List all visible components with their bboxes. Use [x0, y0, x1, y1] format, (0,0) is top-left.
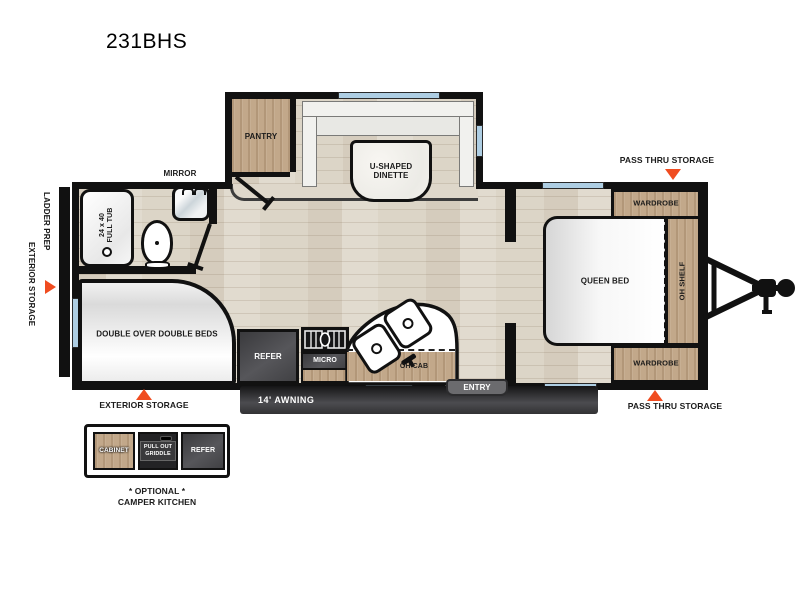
- camper-refer-label: REFER: [191, 447, 215, 455]
- camper-griddle: PULL OUT GRIDDLE: [138, 432, 178, 470]
- bathtub-label: 24 x 40 FULL TUB: [99, 208, 115, 243]
- dinette-bench-back: [302, 101, 474, 117]
- refer-label: REFER: [254, 352, 282, 361]
- bedroom-wall-top: [505, 182, 516, 242]
- pass-thru-bottom-label: PASS THRU STORAGE: [625, 402, 725, 412]
- toilet-base: [145, 261, 170, 269]
- dinette-bench-seat: [316, 116, 460, 136]
- bedroom-top-window: [542, 182, 604, 189]
- griddle-handle-icon: [160, 436, 172, 441]
- wardrobe-top-label: WARDROBE: [633, 200, 678, 209]
- camper-cabinet: CABINET: [93, 432, 135, 470]
- pantry-label: PANTRY: [234, 132, 288, 141]
- exterior-storage-bottom-label: EXTERIOR STORAGE: [98, 401, 190, 411]
- queen-bed-label: QUEEN BED: [581, 276, 629, 285]
- tub-drain: [102, 247, 112, 257]
- entry-badge: ENTRY: [446, 379, 508, 396]
- oh-shelf: OH SHELF: [665, 216, 701, 346]
- micro-label: MICRO: [313, 357, 337, 365]
- queen-bed: QUEEN BED: [543, 216, 667, 346]
- slideout-right-window: [476, 125, 483, 157]
- camper-griddle-label: PULL OUT GRIDDLE: [140, 441, 176, 461]
- awning-bar: 14' AWNING: [240, 386, 598, 414]
- pass-thru-top-arrow: [665, 169, 681, 180]
- wardrobe-bottom-label: WARDROBE: [633, 360, 678, 369]
- bathtub: 24 x 40 FULL TUB: [80, 189, 134, 267]
- ladder-prep-label: LADDER PREP: [42, 186, 51, 256]
- exterior-storage-bottom-arrow: [136, 389, 152, 400]
- pass-thru-top-label: PASS THRU STORAGE: [608, 156, 726, 166]
- slideout-wall-left: [225, 92, 232, 189]
- bath-sink: [172, 186, 210, 221]
- pantry-wall-bottom: [232, 172, 290, 177]
- wall-top-front: [604, 182, 708, 189]
- mirror-label: MIRROR: [150, 169, 210, 178]
- page-title: 231BHS: [106, 30, 187, 54]
- hitch-icon: [702, 238, 798, 338]
- faucet-icon: [194, 188, 206, 195]
- camper-cabinet-label: CABINET: [99, 447, 129, 454]
- awning-label: 14' AWNING: [258, 395, 314, 405]
- wall-bottom-front: [597, 383, 708, 390]
- camper-kitchen-box: CABINET PULL OUT GRIDDLE REFER: [84, 424, 230, 478]
- refrigerator: REFER: [237, 329, 299, 384]
- floorplan-canvas: 231BHS PANTRY U-SHA: [0, 0, 800, 600]
- camper-refer: REFER: [181, 432, 225, 470]
- bathroom-wall-stub: [209, 182, 217, 224]
- double-beds: DOUBLE OVER DOUBLE BEDS: [78, 279, 236, 385]
- wardrobe-top: WARDROBE: [611, 189, 701, 219]
- faucet-icon: [182, 188, 194, 195]
- pantry-wall-right: [290, 99, 296, 172]
- toilet: [141, 220, 173, 265]
- pass-thru-bottom-arrow: [647, 390, 663, 401]
- exterior-storage-left-label: EXTERIOR STORAGE: [27, 234, 36, 334]
- dinette-label: U-SHAPED DINETTE: [370, 162, 413, 180]
- oh-cab-label: OH CAB: [385, 363, 443, 371]
- slideout-top-window: [338, 92, 440, 99]
- bathroom-wall-bottom: [72, 266, 196, 274]
- wardrobe-bottom: WARDROBE: [611, 345, 701, 383]
- exterior-storage-left-arrow: [45, 280, 56, 294]
- camper-kitchen-caption: * OPTIONAL * CAMPER KITCHEN: [84, 486, 230, 508]
- double-beds-label: DOUBLE OVER DOUBLE BEDS: [96, 329, 217, 338]
- entry-label: ENTRY: [463, 383, 490, 392]
- oh-shelf-label: OH SHELF: [679, 262, 688, 301]
- rear-bumper: [59, 187, 70, 377]
- dinette-table: U-SHAPED DINETTE: [350, 140, 432, 202]
